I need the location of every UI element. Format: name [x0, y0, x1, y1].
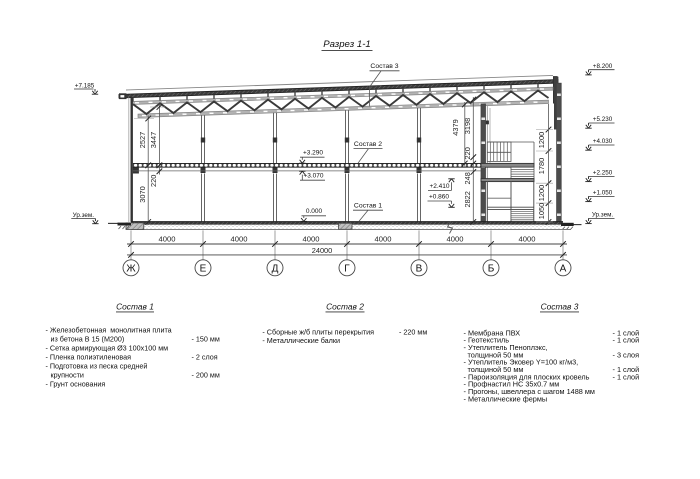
- svg-text:248: 248: [463, 172, 472, 184]
- svg-text:+4.030: +4.030: [593, 138, 613, 145]
- svg-text:Ж: Ж: [126, 263, 136, 274]
- svg-text:- 1 слой: - 1 слой: [613, 372, 640, 381]
- svg-text:- 150 мм: - 150 мм: [192, 335, 220, 344]
- svg-text:1050: 1050: [537, 203, 546, 219]
- svg-text:из бетона В 15 (М200): из бетона В 15 (М200): [51, 335, 125, 344]
- svg-text:220: 220: [149, 175, 158, 187]
- svg-text:1200: 1200: [537, 185, 546, 201]
- svg-text:+3.070: +3.070: [303, 173, 323, 180]
- svg-text:Состав 1: Состав 1: [354, 202, 382, 209]
- svg-text:- 1 слой: - 1 слой: [613, 336, 640, 345]
- svg-text:3447: 3447: [149, 132, 158, 148]
- svg-text:Состав 2: Состав 2: [326, 301, 364, 311]
- svg-text:+5.230: +5.230: [593, 116, 613, 123]
- svg-text:+2.410: +2.410: [429, 183, 449, 190]
- svg-text:- Металлические фермы: - Металлические фермы: [464, 394, 548, 403]
- svg-text:- 200 мм: - 200 мм: [192, 371, 220, 380]
- svg-text:4379: 4379: [451, 119, 460, 135]
- svg-text:4000: 4000: [447, 235, 464, 244]
- svg-text:+2.250: +2.250: [593, 170, 613, 177]
- svg-text:24000: 24000: [312, 246, 333, 255]
- svg-text:Состав 1: Состав 1: [116, 301, 154, 311]
- svg-text:0.000: 0.000: [306, 208, 323, 215]
- svg-text:1200: 1200: [537, 132, 546, 148]
- svg-text:- Пленка полиэтиленовая: - Пленка полиэтиленовая: [46, 353, 132, 362]
- svg-text:Е: Е: [200, 263, 207, 274]
- svg-text:2527: 2527: [138, 132, 147, 148]
- svg-text:3198: 3198: [463, 118, 472, 134]
- svg-text:- Железобетонная монолитная п: - Железобетонная монолитная плита: [46, 326, 172, 335]
- svg-text:+8.200: +8.200: [593, 63, 613, 70]
- svg-text:- Грунт основания: - Грунт основания: [46, 380, 106, 389]
- svg-text:3070: 3070: [138, 186, 147, 202]
- svg-text:- Сетка армирующая Ø3 100х100: - Сетка армирующая Ø3 100х100 мм: [46, 344, 169, 353]
- svg-text:- Подготовка из песка средней: - Подготовка из песка средней: [46, 362, 148, 371]
- svg-text:4000: 4000: [159, 235, 176, 244]
- svg-text:+7.185: +7.185: [75, 82, 95, 89]
- svg-text:Ур.зем.: Ур.зем.: [592, 212, 614, 219]
- svg-text:+3.290: +3.290: [303, 150, 323, 157]
- svg-text:В: В: [416, 263, 423, 274]
- svg-text:4000: 4000: [303, 235, 320, 244]
- svg-text:- 2 слоя: - 2 слоя: [192, 353, 218, 362]
- svg-text:2822: 2822: [463, 191, 472, 207]
- svg-text:220: 220: [463, 147, 472, 159]
- svg-text:Г: Г: [344, 263, 350, 274]
- svg-text:Состав 3: Состав 3: [541, 301, 579, 311]
- svg-text:Состав 3: Состав 3: [370, 63, 398, 70]
- svg-text:- Металлические балки: - Металлические балки: [262, 336, 340, 345]
- svg-text:А: А: [560, 263, 567, 274]
- svg-text:- 220 мм: - 220 мм: [399, 328, 427, 337]
- svg-text:+0.860: +0.860: [429, 193, 449, 200]
- svg-text:Состав 2: Состав 2: [354, 141, 382, 148]
- svg-text:крупности: крупности: [51, 371, 84, 380]
- svg-text:+1.050: +1.050: [593, 190, 613, 197]
- svg-text:1780: 1780: [537, 158, 546, 174]
- svg-text:4000: 4000: [375, 235, 392, 244]
- svg-text:4000: 4000: [519, 235, 536, 244]
- svg-text:- 3 слоя: - 3 слоя: [613, 350, 640, 359]
- svg-text:Разрез 1-1: Разрез 1-1: [323, 39, 371, 50]
- svg-text:Д: Д: [272, 263, 279, 274]
- svg-text:4000: 4000: [231, 235, 248, 244]
- svg-text:Б: Б: [488, 263, 495, 274]
- svg-text:Ур.зем.: Ур.зем.: [73, 212, 95, 219]
